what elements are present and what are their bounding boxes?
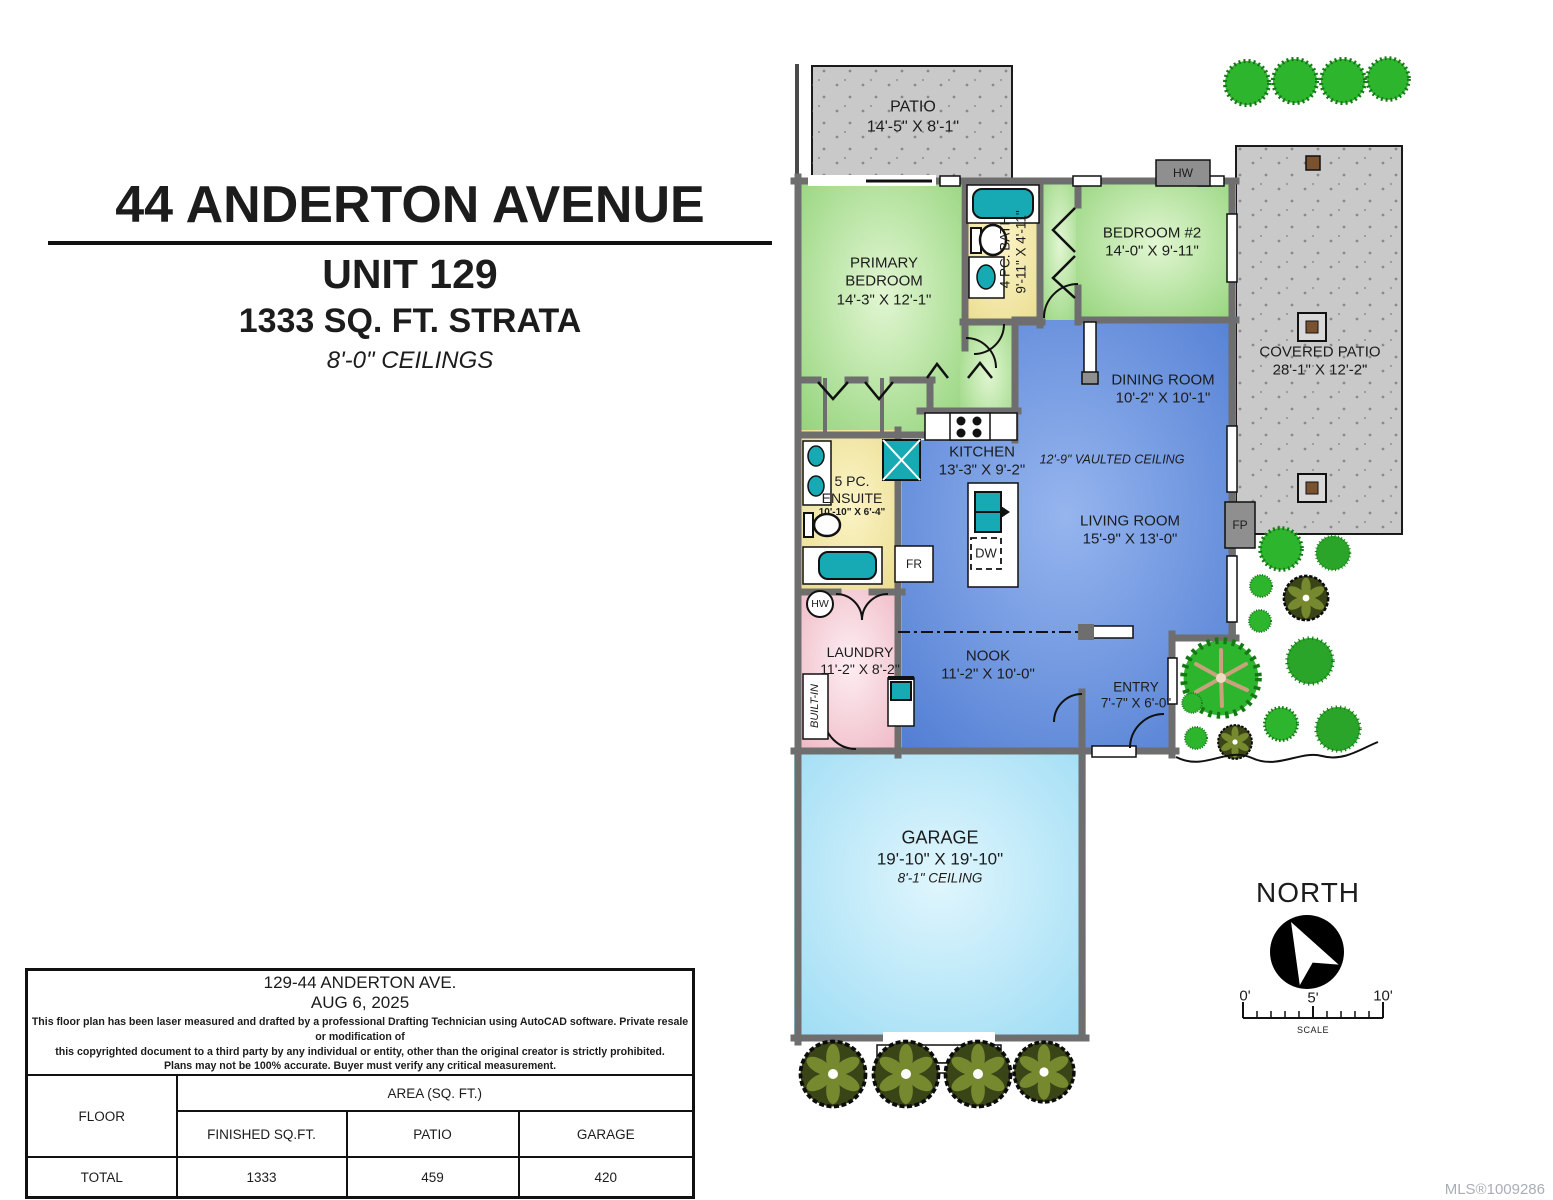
scale-ten: 10' <box>1373 988 1393 1005</box>
wall-post <box>1078 624 1094 640</box>
sink <box>808 446 824 466</box>
col-header-floor: FLOOR <box>27 1075 177 1157</box>
fridge-label: FR <box>906 557 922 571</box>
floor-plan-page: 44 ANDERTON AVENUE UNIT 129 1333 SQ. FT.… <box>0 0 1553 1200</box>
scale-word: SCALE <box>1297 1025 1329 1035</box>
total-label: TOTAL <box>27 1157 177 1197</box>
entry-label: ENTRY7'-7" X 6'-0" <box>1101 680 1171 713</box>
bedroom-2-label: BEDROOM #214'-0" X 9'-11" <box>1103 225 1201 262</box>
title-block: 44 ANDERTON AVENUE UNIT 129 1333 SQ. FT.… <box>48 178 772 375</box>
garage-floor <box>794 748 1086 1041</box>
bathtub <box>819 552 876 579</box>
col-header-patio: PATIO <box>347 1111 519 1157</box>
ceiling-subtitle: 8'-0" CEILINGS <box>48 347 772 375</box>
col-header-area: AREA (SQ. FT.) <box>177 1075 694 1111</box>
unit-subtitle: UNIT 129 <box>48 251 772 298</box>
info-table: 129-44 ANDERTON AVE. AUG 6, 2025 This fl… <box>25 968 695 1199</box>
total-garage-value: 420 <box>519 1157 694 1197</box>
garage-label: GARAGE 19'-10" X 19'-10" 8'-1" CEILING <box>877 827 1003 886</box>
hw-heater-label: HW <box>811 598 829 610</box>
dishwasher-label: DW <box>975 546 997 561</box>
kitchen-label: KITCHEN13'-3" X 9'-2" <box>939 444 1025 481</box>
scale-five: 5' <box>1307 990 1318 1007</box>
living-room-label: LIVING ROOM15'-9" X 13'-0" <box>1080 513 1180 550</box>
dining-room-label: DINING ROOM10'-2" X 10'-1" <box>1111 372 1214 409</box>
col-header-garage: GARAGE <box>519 1111 694 1157</box>
ensuite-label: 5 PC. ENSUITE 10'-10" X 6'-4" <box>811 473 893 519</box>
scale-zero: 0' <box>1239 988 1250 1005</box>
patio-label: PATIO14'-5" X 8'-1" <box>867 97 959 136</box>
info-header-cell: 129-44 ANDERTON AVE. AUG 6, 2025 This fl… <box>27 970 694 1076</box>
col-header-finished: FINISHED SQ.FT. <box>177 1111 347 1157</box>
north-compass <box>1270 912 1344 989</box>
primary-bedroom-label: PRIMARY BEDROOM 14'-3" X 12'-1" <box>828 255 940 310</box>
info-disclaimer: This floor plan has been laser measured … <box>28 1015 692 1074</box>
fireplace-label: FP <box>1232 518 1247 532</box>
page-title: 44 ANDERTON AVENUE <box>48 178 772 245</box>
table-row-total: TOTAL 1333 459 420 <box>27 1157 694 1197</box>
hw-tank-label: HW <box>1173 166 1193 180</box>
info-address: 129-44 ANDERTON AVE. <box>28 973 692 993</box>
covered-patio-label: COVERED PATIO28'-1" X 12'-2" <box>1259 344 1380 381</box>
area-subtitle: 1333 SQ. FT. STRATA <box>48 302 772 341</box>
total-patio-value: 459 <box>347 1157 519 1197</box>
bath-4pc-label: 4 PC. BATH9'-11" X 4'-11" <box>998 210 1031 293</box>
built-in-label: BUILT-IN <box>809 684 821 728</box>
laundry-label: LAUNDRY11'-2" X 8'-2" <box>820 644 900 678</box>
total-finished-value: 1333 <box>177 1157 347 1197</box>
info-date: AUG 6, 2025 <box>28 993 692 1013</box>
north-label: NORTH <box>1256 877 1360 909</box>
patio-post <box>1306 156 1320 170</box>
dining-half-wall <box>1082 322 1098 384</box>
sink <box>977 265 995 289</box>
mls-number: MLS®1009286 <box>1445 1181 1545 1198</box>
shrubs-top <box>1225 58 1409 105</box>
nook-label: NOOK11'-2" X 10'-0" <box>941 648 1035 685</box>
vaulted-ceiling-note: 12'-9" VAULTED CEILING <box>1040 452 1185 467</box>
stove <box>950 413 990 440</box>
covered-patio-area <box>1236 146 1402 534</box>
